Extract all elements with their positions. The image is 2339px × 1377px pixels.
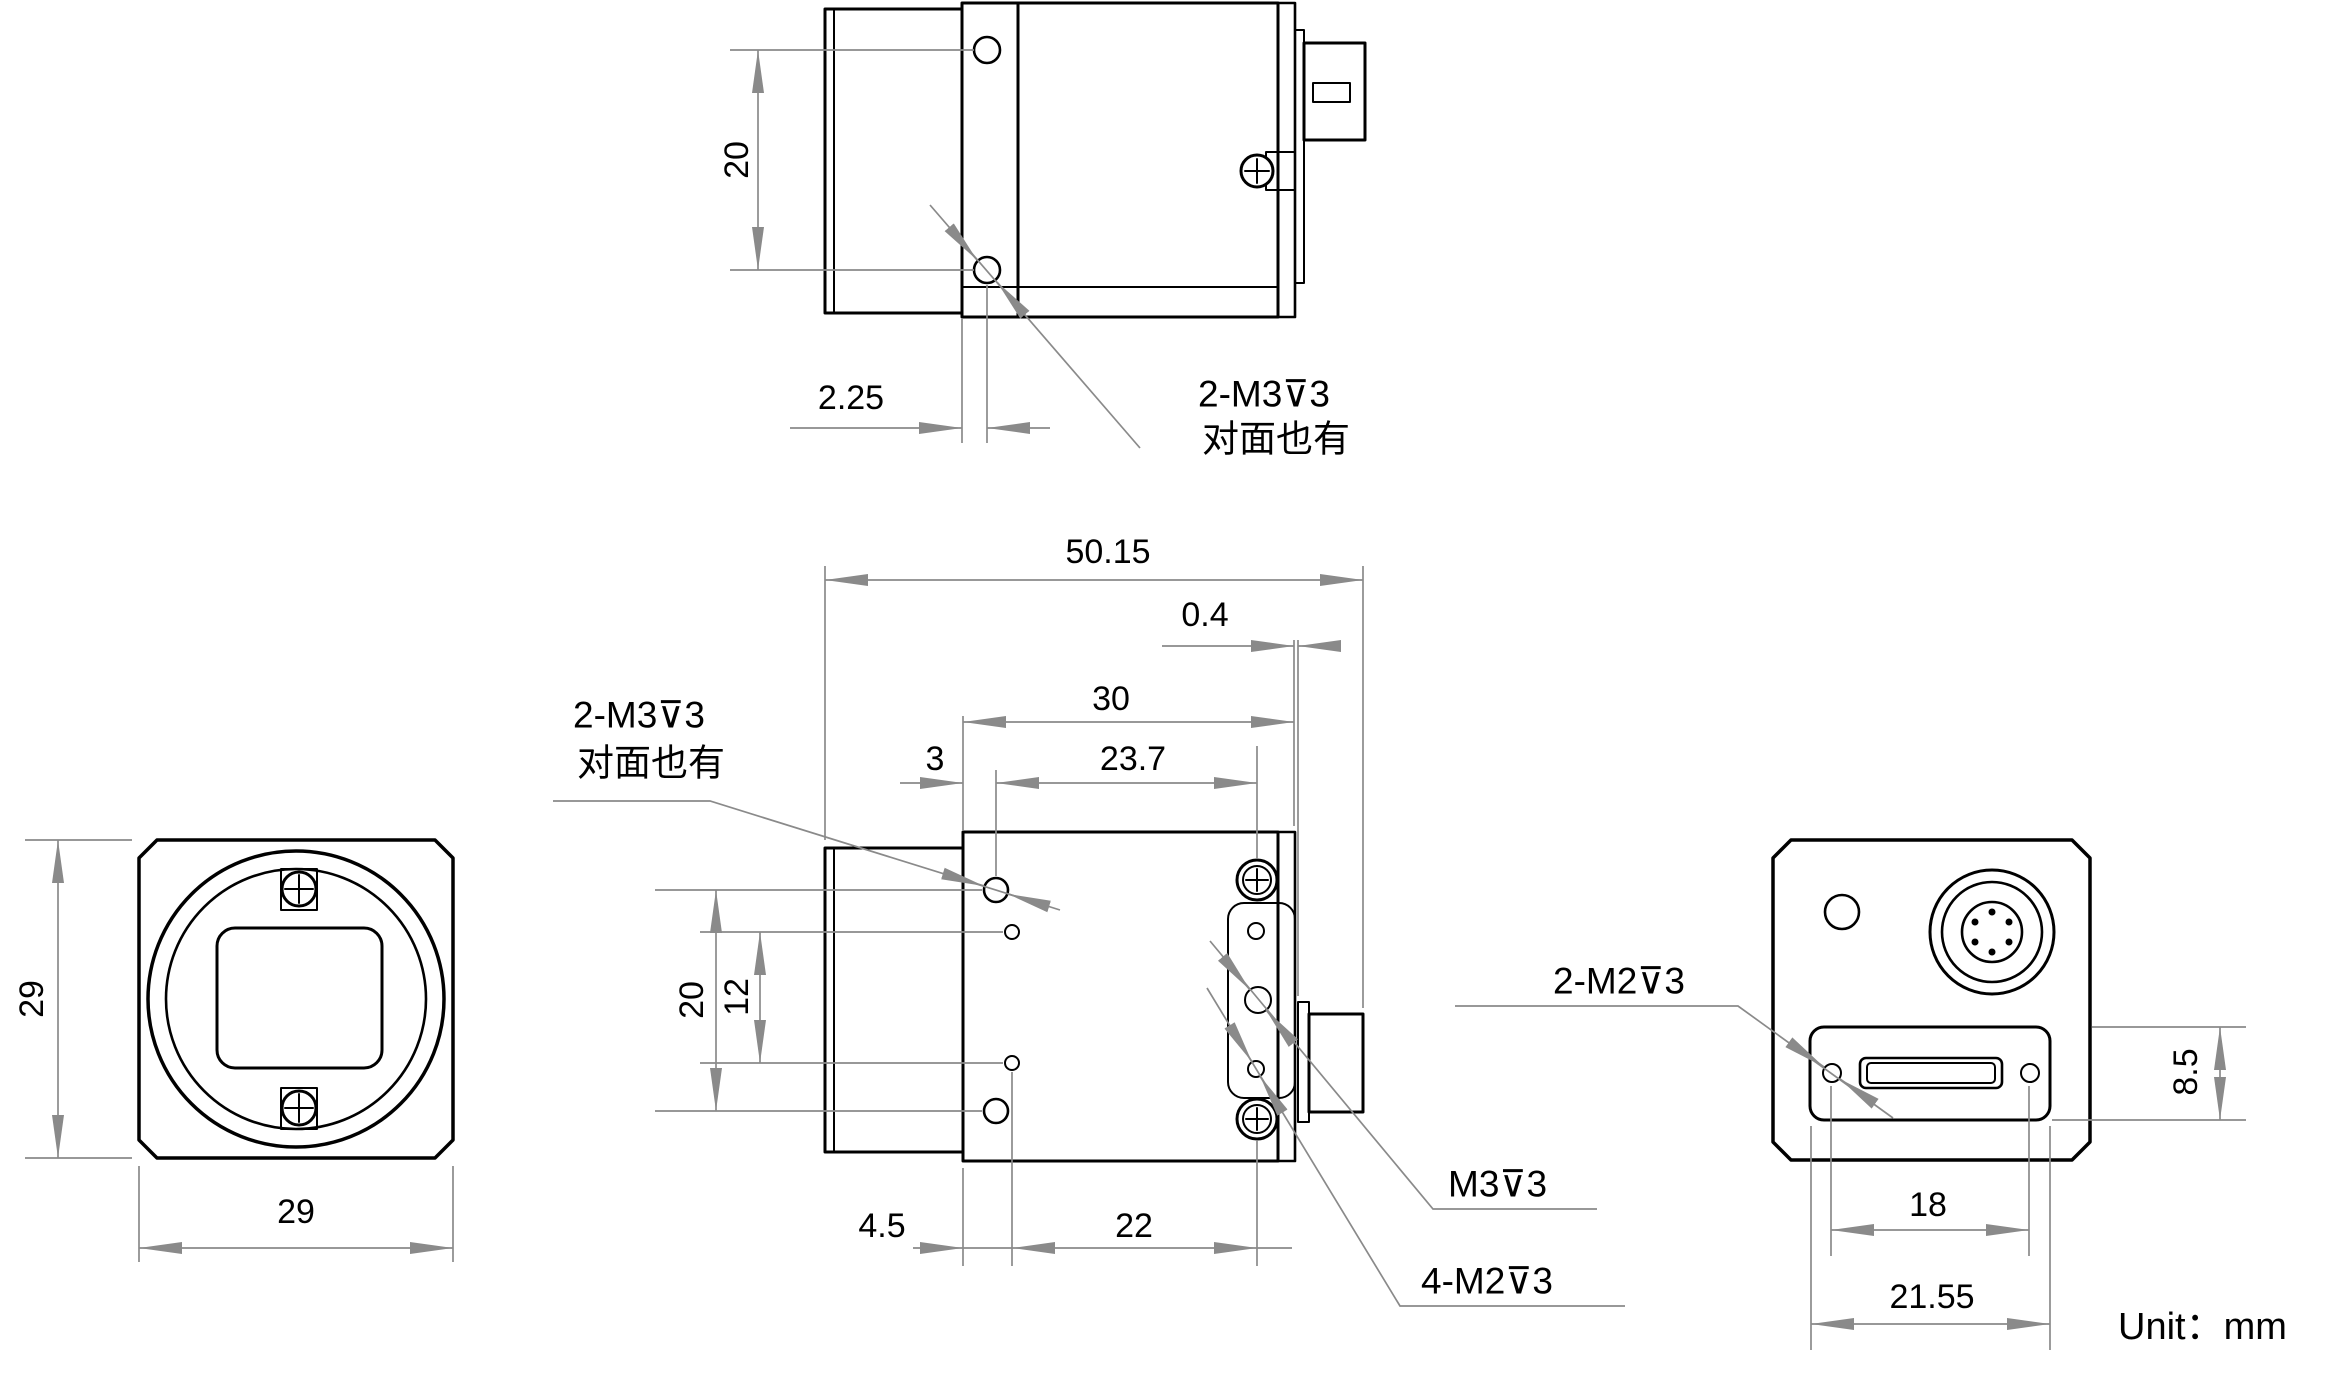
top-lens-barrel	[825, 9, 962, 313]
side-screw-bottom	[1237, 1099, 1277, 1139]
dim-label-side-30: 30	[1092, 682, 1130, 716]
rear-dim-18	[1831, 1086, 2029, 1256]
rear-body-outline	[1773, 840, 2090, 1160]
side-dim-3-and-23-7	[900, 746, 1257, 876]
side-m2-hole-bottom	[1005, 1056, 1019, 1070]
front-screw-top	[281, 869, 317, 910]
side-dim-4-5-and-22	[913, 1072, 1292, 1266]
top-screw	[1241, 152, 1295, 190]
top-rear-plate	[1278, 3, 1295, 317]
dim-label-side-4-5: 4.5	[858, 1209, 905, 1243]
side-4m2-depth-leader	[1207, 988, 1625, 1306]
rear-data-port	[1810, 1027, 2050, 1120]
side-dim-0-4	[1162, 640, 1340, 996]
side-m3-hole-bottom	[984, 1099, 1008, 1123]
rear-dim-8-5	[2052, 1027, 2246, 1120]
dim-label-front-width-29: 29	[277, 1195, 315, 1229]
callout-side-2m3-note: 对面也有	[577, 745, 725, 782]
front-view	[25, 840, 453, 1262]
unit-note: Unit：mm	[2118, 1308, 2287, 1346]
dim-label-rear-21-55: 21.55	[1889, 1280, 1974, 1314]
side-lens-barrel	[825, 848, 963, 1152]
dim-label-rear-8-5: 8.5	[2169, 1048, 2203, 1095]
dim-label-side-0-4: 0.4	[1181, 598, 1228, 632]
dim-label-side-12: 12	[720, 978, 754, 1016]
side-rear-slot	[1228, 903, 1295, 1098]
callout-rear-2m2-depth: 2-M2⊽3	[1553, 963, 1685, 1000]
side-dim-50-15	[825, 566, 1363, 1008]
side-camera-body	[963, 832, 1278, 1161]
dim-label-top-20: 20	[720, 141, 754, 179]
callout-top-2m3-note: 对面也有	[1202, 421, 1350, 458]
dim-label-rear-18: 18	[1909, 1188, 1947, 1222]
rear-power-connector	[1930, 870, 2054, 994]
rear-m2-hole-right	[2021, 1064, 2039, 1082]
top-dim-20	[730, 50, 974, 270]
side-io-connector	[1309, 1014, 1363, 1112]
front-sensor-window	[217, 928, 382, 1068]
camera-dimension-drawing: 20 2.25 2-M3⊽3 对面也有 29 29 50.15 0.4 30 2…	[0, 0, 2339, 1377]
side-screw-top	[1237, 860, 1277, 900]
top-camera-body	[962, 3, 1278, 317]
dim-label-front-height-29: 29	[15, 980, 49, 1018]
dim-label-side-3: 3	[926, 742, 945, 776]
dim-label-side-50-15: 50.15	[1065, 535, 1150, 569]
callout-side-4m2-depth: 4-M2⊽3	[1421, 1263, 1553, 1300]
side-rear-plate	[1278, 832, 1295, 1161]
callout-side-m3-depth: M3⊽3	[1448, 1166, 1547, 1203]
drawing-linework	[0, 0, 2339, 1377]
rear-led-hole	[1825, 895, 1859, 929]
front-screw-bottom	[281, 1088, 317, 1129]
side-m2-hole-top	[1005, 925, 1019, 939]
top-dim-2-25	[790, 285, 1050, 443]
dim-label-side-20: 20	[675, 981, 709, 1019]
top-m3-hole-1	[974, 37, 1000, 63]
callout-top-2m3: 2-M3⊽3	[1198, 376, 1330, 413]
dim-label-side-22: 22	[1115, 1209, 1153, 1243]
dim-label-side-23-7: 23.7	[1100, 742, 1166, 776]
callout-side-2m3: 2-M3⊽3	[573, 697, 705, 734]
rear-view	[1455, 840, 2246, 1350]
dim-label-top-2-25: 2.25	[818, 381, 884, 415]
rear-2m2-leader	[1455, 1006, 1893, 1118]
